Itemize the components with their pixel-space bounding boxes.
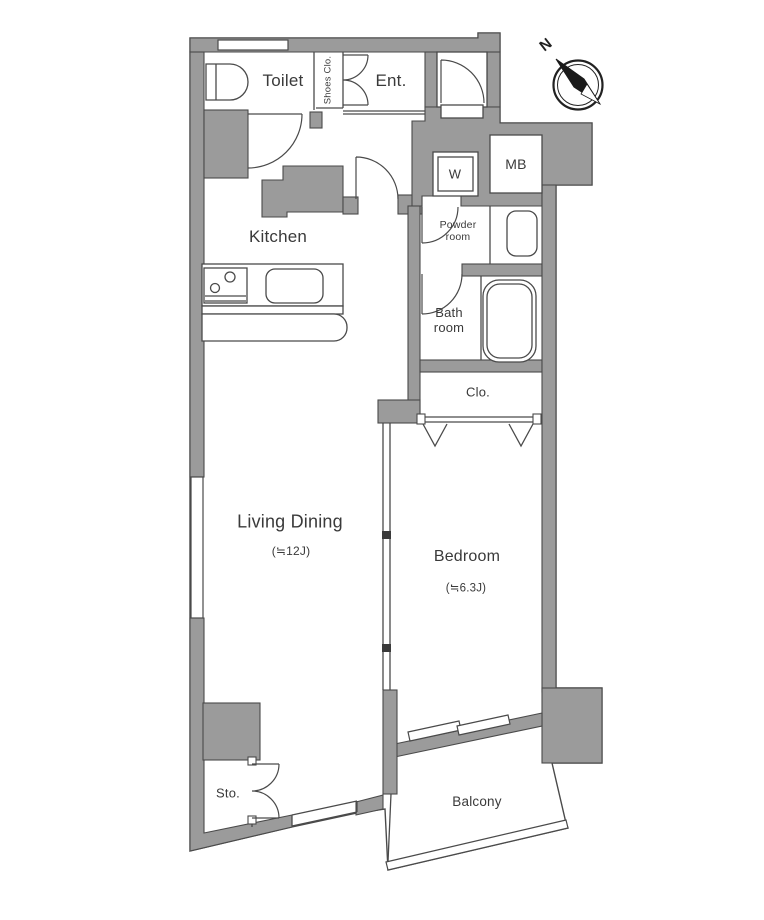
- room-label-closet: Clo.: [466, 386, 490, 401]
- label-meter-box: MB: [505, 156, 526, 172]
- window-left-icon: [191, 477, 203, 618]
- stove-icon: [204, 268, 247, 303]
- stove-burner1-icon: [225, 272, 235, 282]
- water-heater-icon: [507, 211, 537, 256]
- bathtub-inner-icon: [487, 284, 532, 358]
- room-label-storage: Sto.: [216, 787, 240, 802]
- stove-burner2-icon: [211, 284, 220, 293]
- entrance-threshold: [441, 105, 483, 118]
- room-label-kitchen: Kitchen: [249, 227, 307, 247]
- storage-jamb-bottom: [248, 816, 256, 824]
- kitchen-sink-icon: [266, 269, 323, 303]
- wall-ldk-door-stub-left: [343, 197, 358, 214]
- room-label-bedroom: Bedroom: [434, 548, 500, 566]
- room-label-powder-room: Powder room: [440, 219, 477, 243]
- wall-partition-lower: [383, 690, 397, 794]
- window-top-icon: [218, 40, 288, 50]
- label-washing-machine: W: [449, 168, 461, 183]
- partition-tick2: [382, 644, 391, 652]
- floor-plan: Toilet Shoes Clo. Ent. W MB Powder room …: [0, 0, 764, 920]
- closet-track-end-left: [417, 414, 425, 424]
- wall-right: [542, 185, 556, 692]
- wall-powder-left: [408, 206, 420, 421]
- counter-front-strip: [202, 306, 343, 314]
- room-label-balcony: Balcony: [452, 794, 501, 810]
- room-label-entrance: Ent.: [375, 71, 406, 91]
- wall-pillar-balcony: [542, 688, 602, 763]
- wall-entrance-stub: [425, 52, 437, 107]
- wall-shoes-stub: [310, 112, 322, 128]
- floor-plan-svg: [0, 0, 764, 920]
- closet-track-end-right: [533, 414, 541, 424]
- room-label-bathroom: Bath room: [434, 306, 464, 336]
- label-bedroom-size: (≒6.3J): [446, 582, 486, 595]
- room-label-shoes-closet: Shoes Clo.: [324, 56, 335, 104]
- label-living-dining-size: (≒12J): [272, 545, 311, 559]
- counter-bar: [202, 314, 347, 341]
- wall-porch-right: [487, 52, 500, 107]
- wall-storage-top: [203, 703, 260, 760]
- room-label-toilet: Toilet: [263, 71, 304, 91]
- wall-partition-stub: [378, 400, 420, 423]
- toilet-icon: [206, 64, 248, 100]
- partition-tick1: [382, 531, 391, 539]
- room-label-living-dining: Living Dining: [237, 512, 343, 533]
- wall-bath-top: [462, 264, 542, 276]
- compass-icon: [554, 59, 603, 110]
- wall-hall-block: [204, 110, 248, 178]
